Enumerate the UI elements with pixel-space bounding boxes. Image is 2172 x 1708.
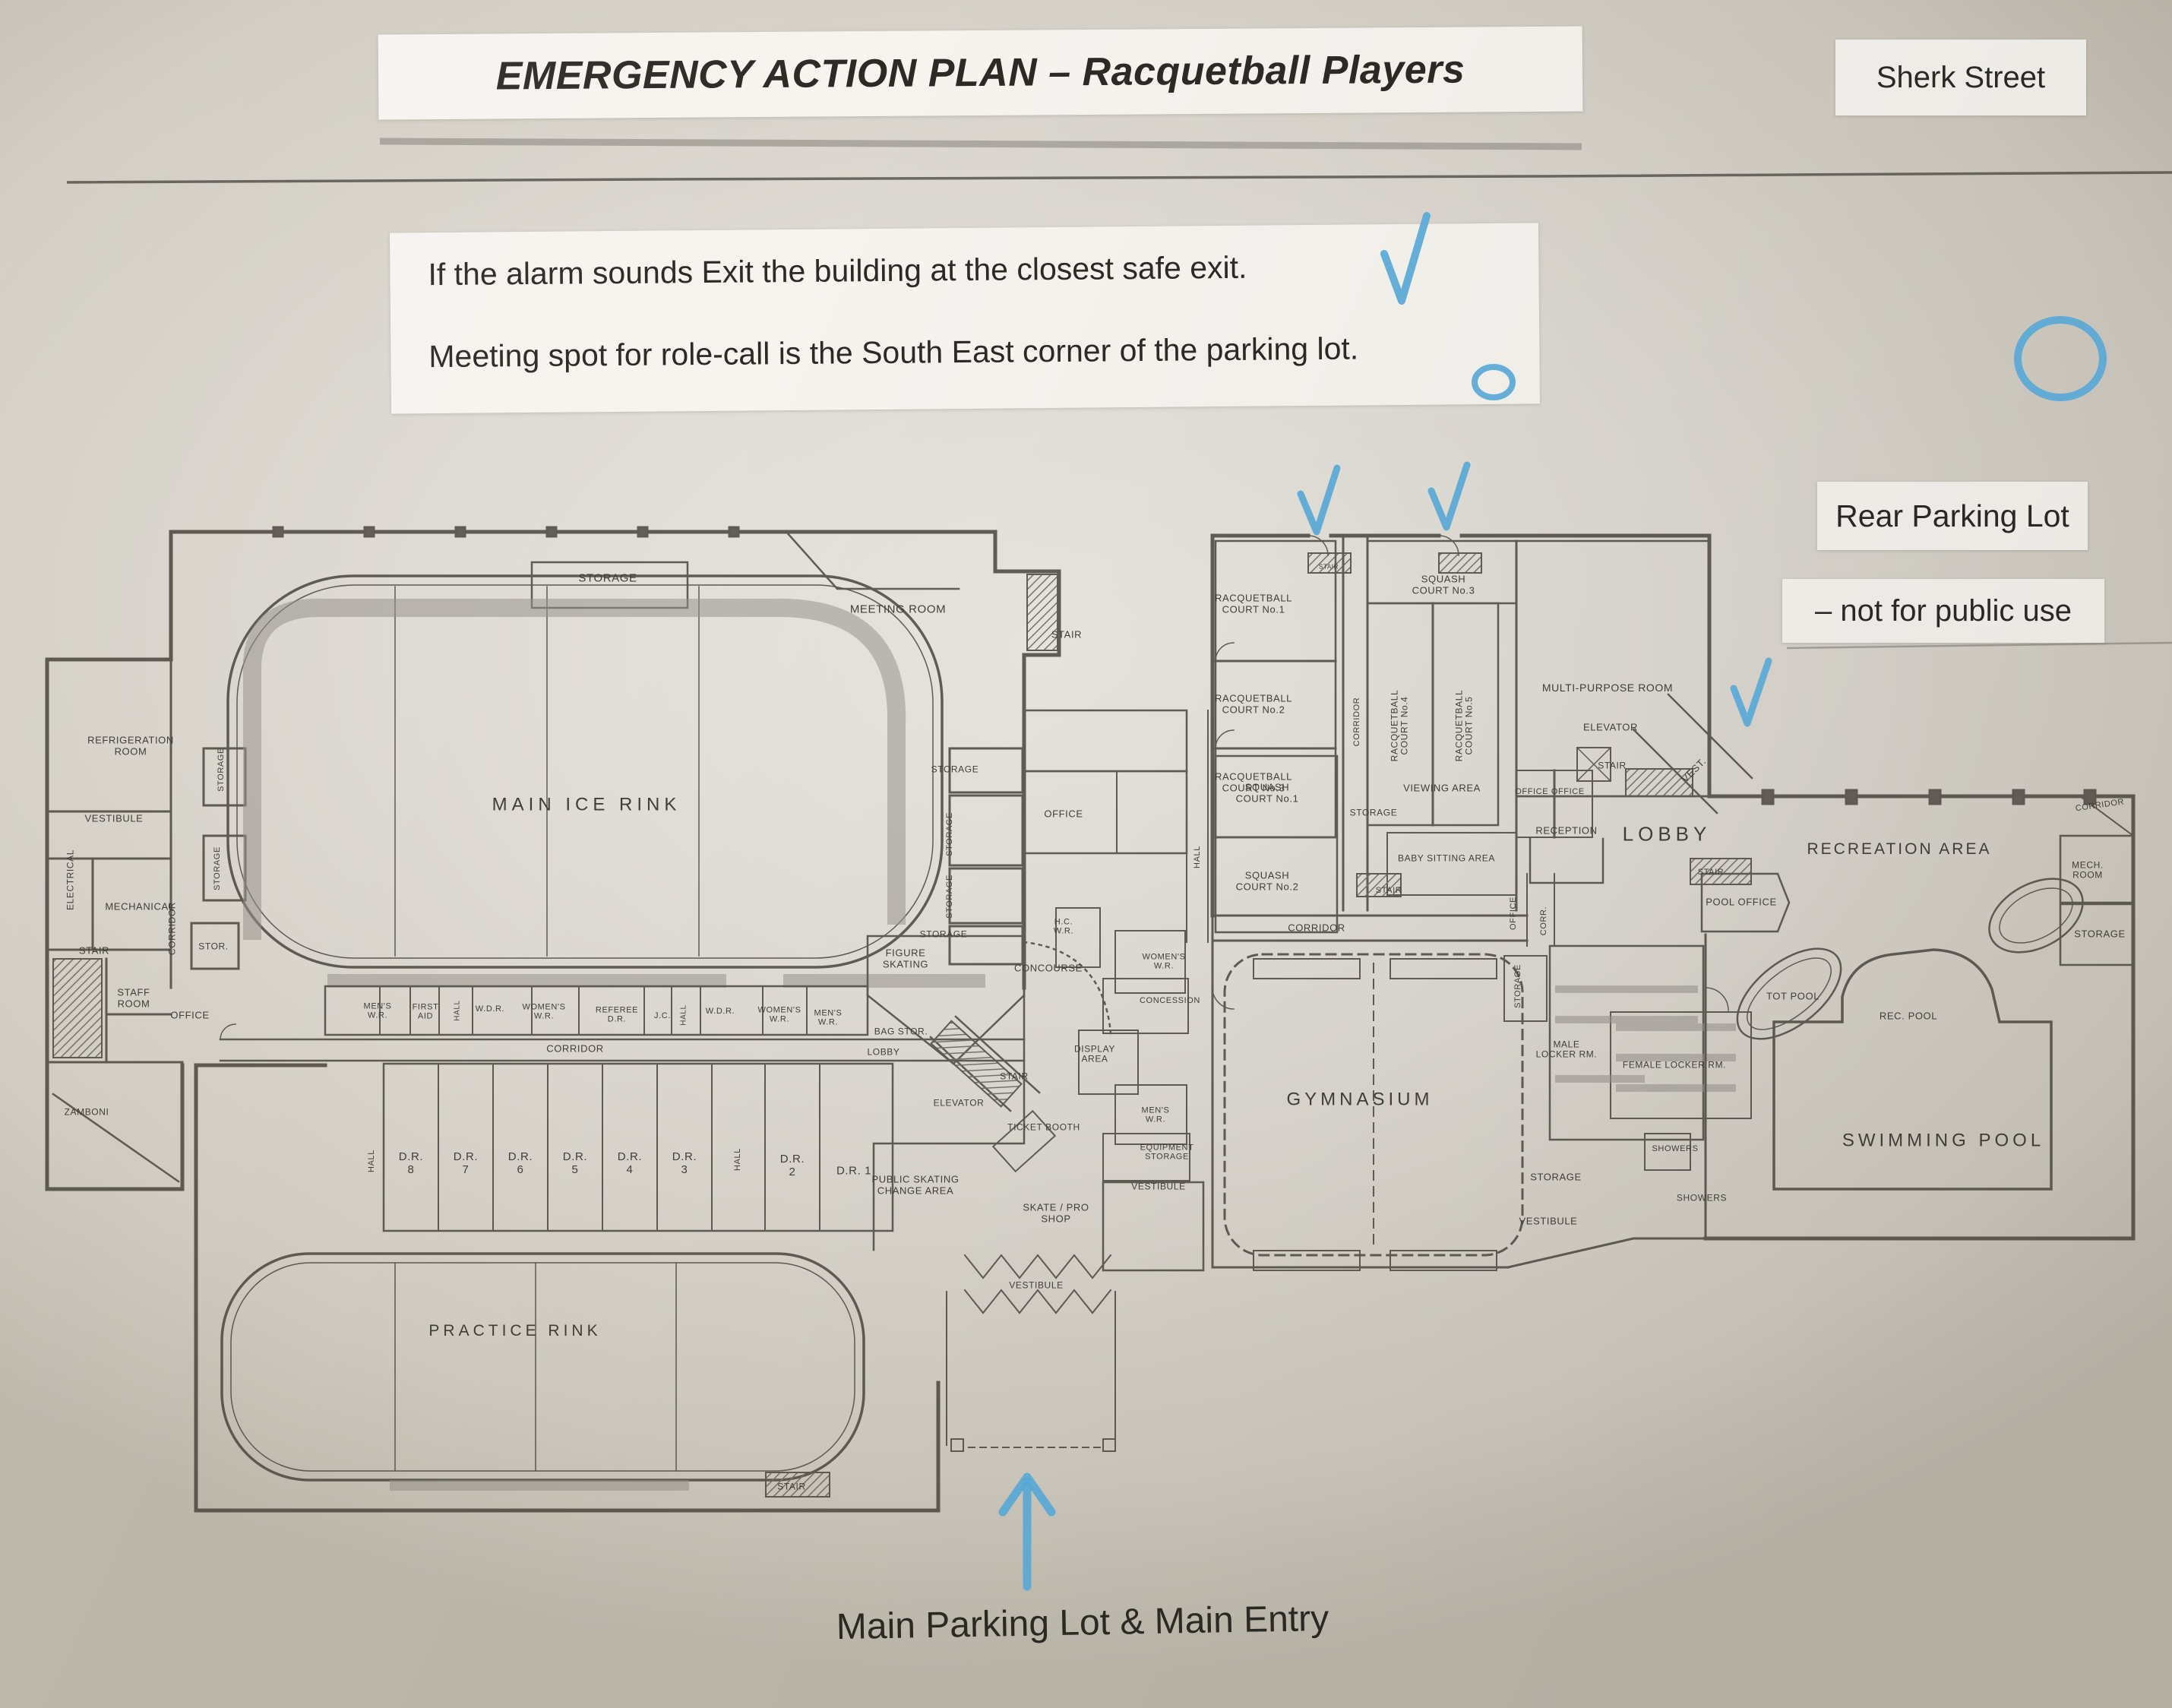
photographed-emergency-plan: EMERGENCY ACTION PLAN – Racquetball Play…: [0, 0, 2172, 1708]
floorplan-walls: [47, 527, 2133, 1510]
header-rules: [67, 141, 2172, 648]
floorplan-drawing: [0, 0, 2172, 1708]
